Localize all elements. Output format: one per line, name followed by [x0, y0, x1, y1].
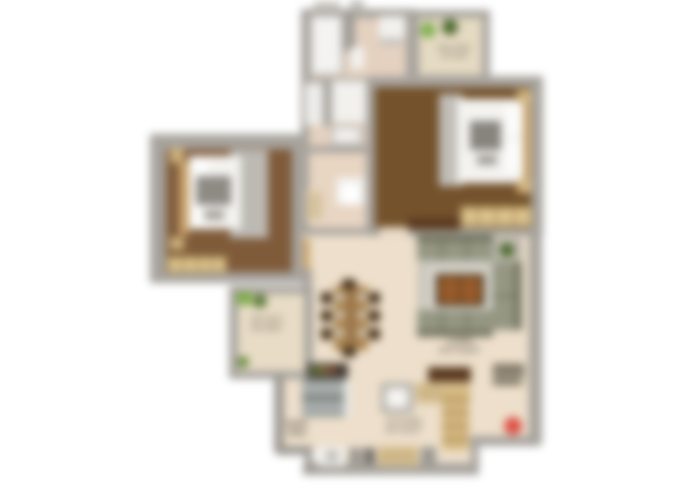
svg-text:AREA: AREA — [287, 430, 307, 437]
svg-text:11'0"X12'6": 11'0"X12'6" — [439, 346, 482, 355]
svg-text:SIT OUT: SIT OUT — [251, 315, 283, 324]
svg-text:KITCHEN: KITCHEN — [386, 417, 421, 426]
svg-text:WORK: WORK — [286, 421, 308, 428]
svg-text:8'0"X10'0": 8'0"X10'0" — [386, 426, 422, 435]
svg-text:BALCONY: BALCONY — [438, 45, 472, 52]
svg-text:4'0"X8'6": 4'0"X8'6" — [441, 53, 469, 60]
svg-text:4'0"X8'6": 4'0"X8'6" — [251, 324, 283, 333]
svg-text:LIVING: LIVING — [447, 337, 474, 346]
